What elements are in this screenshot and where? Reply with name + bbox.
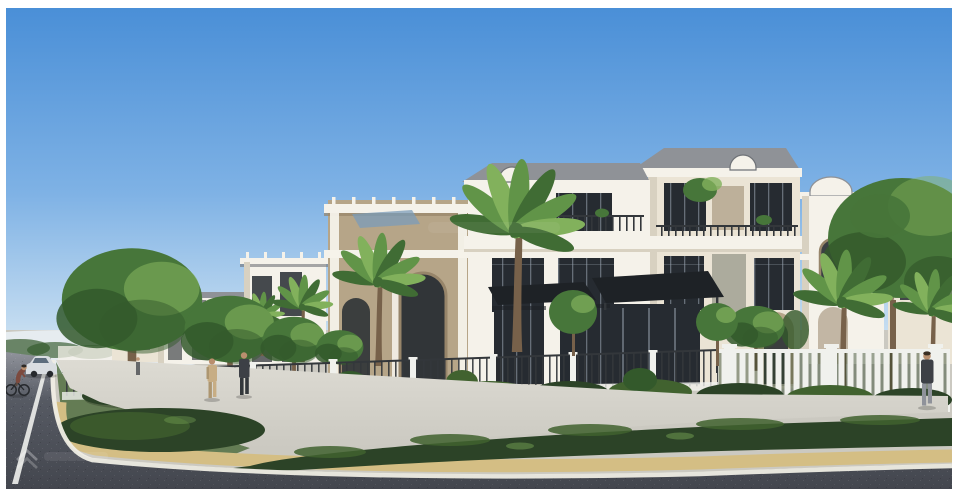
window: [754, 258, 794, 310]
render-image: [0, 0, 960, 492]
screenshot-stage: [0, 0, 960, 492]
watermark-text-ghost-center: [428, 222, 560, 233]
watermark-text-ghost: [44, 452, 108, 461]
window: [750, 183, 792, 231]
balcony-plant: [756, 215, 772, 225]
decor-panel: [712, 186, 744, 230]
balcony-plant: [595, 209, 609, 218]
distant-pedestrian: [136, 362, 140, 375]
